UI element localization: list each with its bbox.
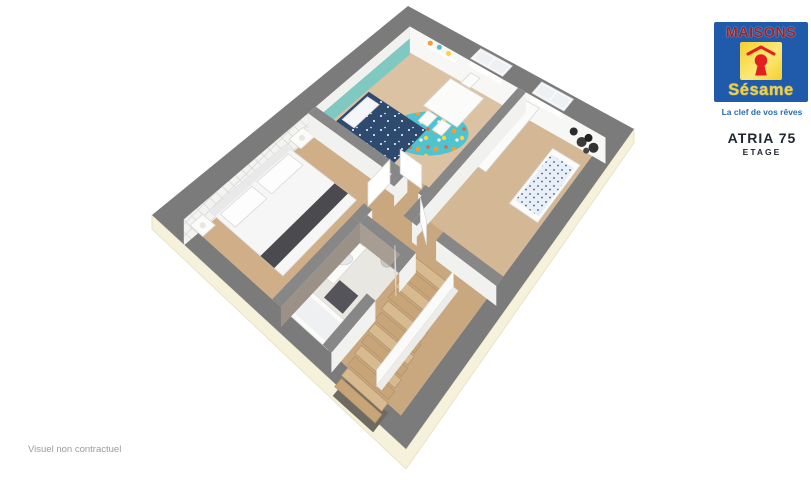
floorplan-3d-render [0, 0, 811, 480]
keyhole-icon [741, 43, 781, 79]
shelf-deco [428, 41, 433, 46]
page: MAISONS Sésame La clef de vos rêves ATRI… [0, 0, 811, 480]
floorplan-root [152, 6, 634, 469]
nursery-wall-circle-decal [585, 134, 593, 142]
keyhole-stem [755, 65, 767, 76]
logo-maisons-text: MAISONS [726, 25, 796, 41]
shelf-deco [437, 45, 442, 50]
wall-face [412, 222, 417, 246]
maisons-sesame-logo: MAISONS Sésame [714, 22, 808, 102]
nursery-wall-circle-decal [583, 148, 589, 154]
nursery-wall-circle-decal [570, 128, 578, 136]
brand-block: MAISONS Sésame La clef de vos rêves ATRI… [714, 22, 810, 157]
roof-icon [748, 47, 774, 54]
logo-sesame-text: Sésame [728, 81, 793, 100]
nursery-wall-circle-decal [589, 143, 599, 153]
bedside-lamp [299, 135, 305, 141]
model-name: ATRIA 75 [714, 130, 810, 146]
bedside-lamp [200, 222, 206, 228]
disclaimer-text: Visuel non contractuel [28, 444, 121, 455]
logo-keyhole-box [740, 42, 782, 80]
floor-label: ETAGE [714, 147, 810, 157]
shelf-deco [446, 51, 451, 56]
logo-tagline: La clef de vos rêves [714, 107, 810, 117]
